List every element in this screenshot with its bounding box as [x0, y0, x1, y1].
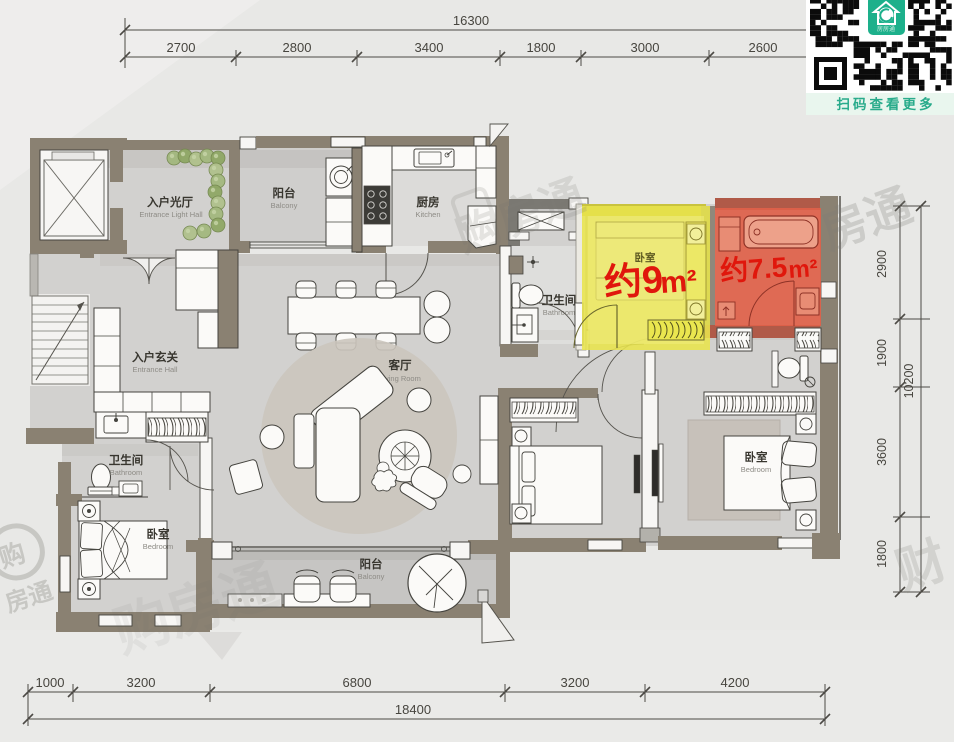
- svg-text:4200: 4200: [721, 675, 750, 690]
- svg-text:入户玄关: 入户玄关: [132, 350, 178, 364]
- svg-text:1000: 1000: [36, 675, 65, 690]
- svg-text:3200: 3200: [127, 675, 156, 690]
- svg-text:Bathroom: Bathroom: [110, 468, 143, 477]
- svg-text:18400: 18400: [395, 702, 431, 717]
- svg-text:客厅: 客厅: [388, 358, 412, 372]
- svg-text:2900: 2900: [875, 250, 889, 278]
- svg-text:m²: m²: [659, 265, 698, 300]
- svg-text:入户光厅: 入户光厅: [147, 195, 193, 209]
- svg-text:Entrance Hall: Entrance Hall: [132, 365, 177, 374]
- svg-text:Bedroom: Bedroom: [143, 542, 173, 551]
- svg-text:厨房: 厨房: [417, 195, 440, 209]
- svg-text:6800: 6800: [343, 675, 372, 690]
- svg-text:扫码查看更多: 扫码查看更多: [837, 96, 936, 112]
- svg-text:3400: 3400: [415, 40, 444, 55]
- svg-text:3200: 3200: [561, 675, 590, 690]
- svg-text:约9: 约9: [603, 259, 665, 305]
- svg-text:卫生间: 卫生间: [542, 293, 577, 307]
- svg-text:Balcony: Balcony: [358, 572, 385, 581]
- svg-text:2800: 2800: [283, 40, 312, 55]
- svg-text:m²: m²: [788, 255, 819, 284]
- svg-text:3600: 3600: [875, 438, 889, 466]
- svg-text:1800: 1800: [875, 540, 889, 568]
- svg-text:1800: 1800: [527, 40, 556, 55]
- svg-text:阳台: 阳台: [360, 557, 383, 571]
- svg-text:约7.5: 约7.5: [719, 251, 788, 287]
- svg-text:卧室: 卧室: [745, 450, 768, 464]
- svg-text:10200: 10200: [902, 364, 916, 399]
- svg-text:卧室: 卧室: [147, 527, 170, 541]
- svg-text:房房通: 房房通: [877, 25, 895, 33]
- svg-text:卫生间: 卫生间: [109, 453, 144, 467]
- svg-text:Balcony: Balcony: [271, 201, 298, 210]
- svg-text:1900: 1900: [875, 339, 889, 367]
- svg-text:Kitchen: Kitchen: [415, 210, 440, 219]
- svg-text:Bedroom: Bedroom: [741, 465, 771, 474]
- svg-text:阳台: 阳台: [273, 186, 296, 200]
- svg-text:Entrance Light Hall: Entrance Light Hall: [139, 210, 203, 219]
- svg-text:16300: 16300: [453, 13, 489, 28]
- svg-text:2700: 2700: [167, 40, 196, 55]
- svg-text:3000: 3000: [631, 40, 660, 55]
- svg-text:2600: 2600: [749, 40, 778, 55]
